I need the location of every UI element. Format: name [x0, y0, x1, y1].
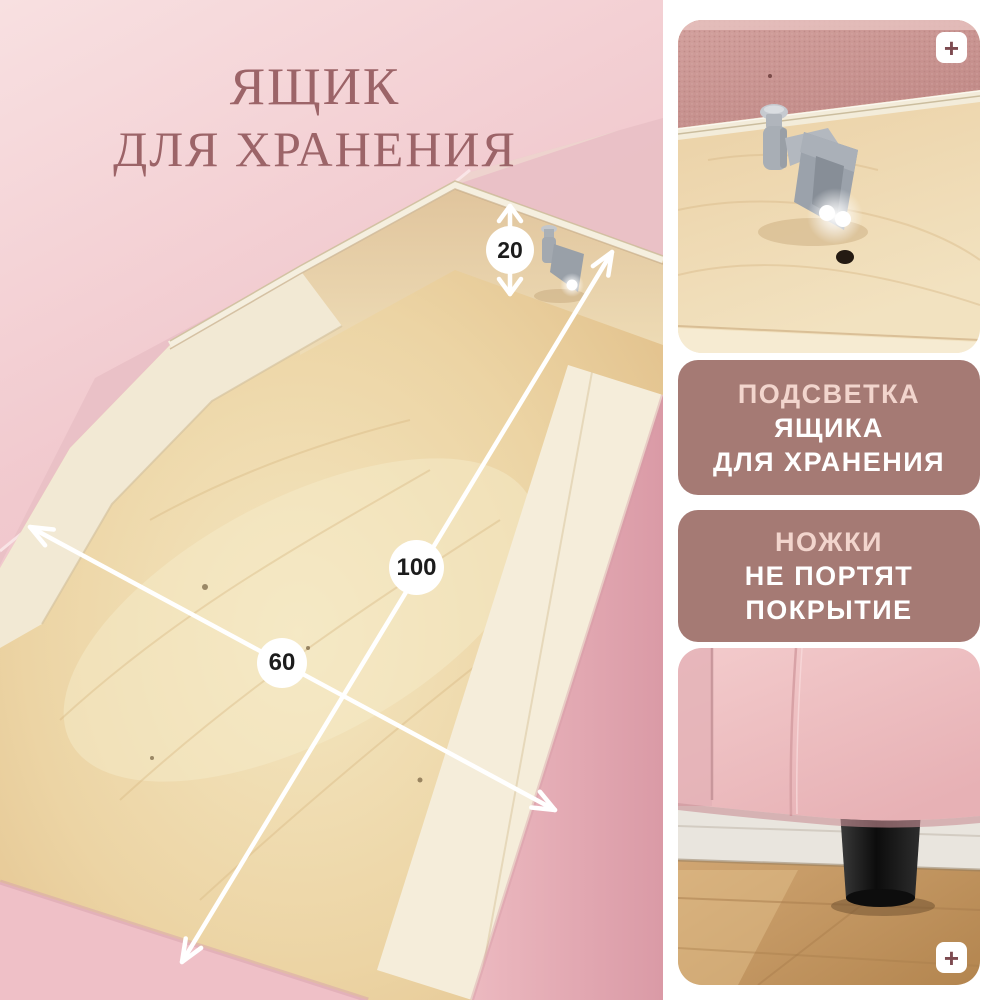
plus-icon: +: [944, 945, 959, 971]
plus-icon: +: [944, 35, 959, 61]
sofa-leg-art: [678, 648, 980, 985]
feature-legs-line3: ПОКРЫТИЕ: [745, 593, 912, 627]
page-root: ЯЩИК ДЛЯ ХРАНЕНИЯ 20 100 60: [0, 0, 1000, 1000]
feature-panel-legs: НОЖКИ НЕ ПОРТЯТ ПОКРЫТИЕ: [678, 510, 980, 642]
page-title: ЯЩИК ДЛЯ ХРАНЕНИЯ: [0, 56, 630, 180]
dimension-badge-width: 60: [257, 638, 307, 688]
drawer-light-art: [678, 20, 980, 353]
feature-legs-accent: НОЖКИ: [775, 525, 883, 559]
zoom-button-bottom[interactable]: +: [936, 942, 967, 973]
drawer-light-photo-panel: +: [678, 20, 980, 353]
feature-light-line2: ЯЩИКА: [774, 411, 884, 445]
sofa-corner: [678, 648, 980, 828]
feature-panel-light: ПОДСВЕТКА ЯЩИКА ДЛЯ ХРАНЕНИЯ: [678, 360, 980, 495]
page-title-line1: ЯЩИК: [0, 56, 630, 118]
feature-light-line3: ДЛЯ ХРАНЕНИЯ: [713, 445, 945, 479]
zoom-button-top[interactable]: +: [936, 32, 967, 63]
sofa-leg-photo-panel: +: [678, 648, 980, 985]
drilled-hole: [836, 250, 854, 264]
feature-legs-line2: НЕ ПОРТЯТ: [745, 559, 914, 593]
dimension-badge-height: 20: [486, 226, 534, 274]
dimension-badge-length: 100: [389, 540, 444, 595]
page-title-line2: ДЛЯ ХРАНЕНИЯ: [0, 118, 630, 180]
feature-light-accent: ПОДСВЕТКА: [738, 377, 920, 411]
storage-drawer-photo: ЯЩИК ДЛЯ ХРАНЕНИЯ 20 100 60: [0, 0, 663, 1000]
